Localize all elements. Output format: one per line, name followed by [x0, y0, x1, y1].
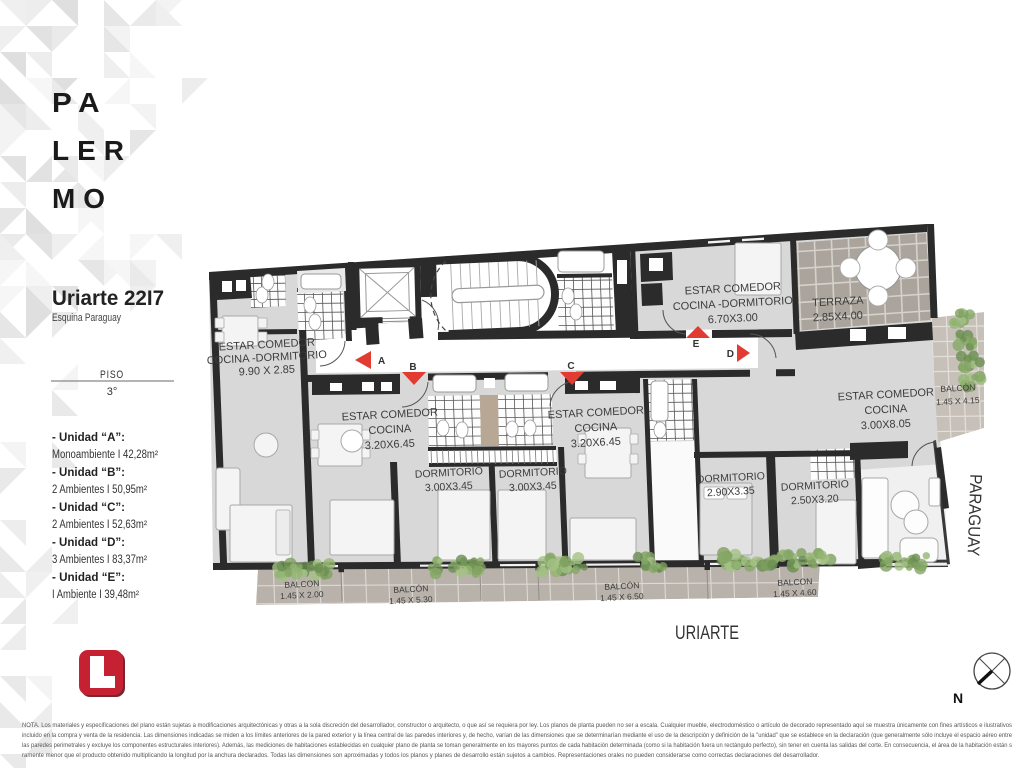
svg-text:E: E: [693, 339, 700, 350]
svg-text:N: N: [953, 690, 963, 706]
svg-text:las paredes perimetrales y exc: las paredes perimetrales y excluye los c…: [22, 743, 1012, 749]
svg-text:BALCON: BALCON: [777, 576, 812, 588]
svg-text:Esquina Paraguay: Esquina Paraguay: [52, 312, 121, 324]
svg-text:2.90X3.35: 2.90X3.35: [707, 485, 756, 499]
svg-text:BALCÓN: BALCÓN: [393, 583, 428, 595]
svg-text:3.00X3.45: 3.00X3.45: [509, 480, 558, 494]
svg-text:3.00X3.45: 3.00X3.45: [425, 480, 474, 494]
svg-text:2.50X3.20: 2.50X3.20: [791, 493, 840, 507]
svg-text:PISO: PISO: [100, 369, 124, 381]
svg-text:PA: PA: [52, 87, 108, 118]
svg-text:- Unidad “A”:: - Unidad “A”:: [52, 432, 125, 444]
svg-text:- Unidad “D”:: - Unidad “D”:: [52, 537, 125, 549]
svg-text:I Ambiente I 39,48m²: I Ambiente I 39,48m²: [52, 589, 139, 601]
svg-text:A: A: [378, 356, 385, 367]
svg-text:2 Ambientes I 52,63m²: 2 Ambientes I 52,63m²: [52, 519, 147, 531]
svg-text:3°: 3°: [107, 386, 118, 398]
svg-text:BALCON: BALCON: [284, 578, 319, 590]
svg-text:PARAGUAY: PARAGUAY: [964, 474, 986, 557]
svg-text:Uriarte 22I7: Uriarte 22I7: [52, 287, 164, 310]
svg-text:MO: MO: [52, 183, 113, 214]
svg-text:URIARTE: URIARTE: [675, 623, 739, 644]
svg-text:NOTA. Los materiales y especif: NOTA. Los materiales y especificaciones …: [22, 723, 1012, 729]
svg-text:D: D: [727, 349, 734, 360]
svg-text:COCINA: COCINA: [368, 423, 412, 437]
svg-text:BALCÓN: BALCÓN: [940, 382, 975, 394]
svg-text:- Unidad “C”:: - Unidad “C”:: [52, 502, 125, 514]
svg-text:incluido en la compra y venta: incluido en la compra y venta de la resi…: [22, 733, 1013, 739]
svg-text:- Unidad “B”:: - Unidad “B”:: [52, 467, 125, 479]
svg-text:C: C: [567, 361, 574, 372]
svg-text:3 Ambientes I 83,37m²: 3 Ambientes I 83,37m²: [52, 554, 147, 566]
svg-text:LER: LER: [52, 135, 132, 166]
svg-text:Monoambiente I 42,28m²: Monoambiente I 42,28m²: [52, 449, 158, 461]
svg-text:COCINA: COCINA: [574, 421, 618, 435]
svg-text:2 Ambientes I 50,95m²: 2 Ambientes I 50,95m²: [52, 484, 147, 496]
svg-text:ramente menor que el producto: ramente menor que el producto obtenido m…: [22, 753, 820, 759]
svg-text:BALCÓN: BALCÓN: [604, 580, 639, 592]
svg-text:COCINA: COCINA: [864, 403, 908, 417]
svg-text:B: B: [409, 362, 416, 373]
svg-text:- Unidad “E”:: - Unidad “E”:: [52, 572, 125, 584]
